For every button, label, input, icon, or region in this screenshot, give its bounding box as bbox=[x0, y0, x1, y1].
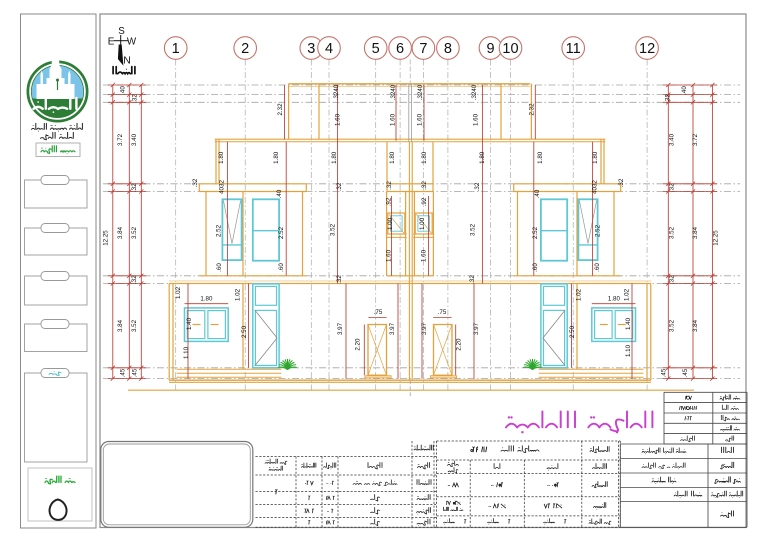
svg-text:10: 10 bbox=[502, 41, 518, 57]
svg-text:3.84: 3.84 bbox=[117, 226, 124, 239]
svg-text:3.52: 3.52 bbox=[330, 223, 337, 236]
svg-text:2.32: 2.32 bbox=[277, 103, 284, 116]
svg-text:1.02: 1.02 bbox=[576, 288, 583, 301]
svg-text:2.20: 2.20 bbox=[455, 338, 462, 351]
svg-text:.32: .32 bbox=[132, 94, 139, 103]
svg-text:1.80: 1.80 bbox=[608, 296, 621, 303]
svg-text:1.60: 1.60 bbox=[416, 113, 423, 126]
svg-text:1.10: 1.10 bbox=[183, 346, 190, 359]
svg-text:1.80: 1.80 bbox=[421, 151, 428, 164]
svg-text:1.60: 1.60 bbox=[334, 113, 341, 126]
svg-text:.40: .40 bbox=[534, 189, 541, 198]
svg-text:6: 6 bbox=[396, 41, 404, 57]
svg-text:1.02: 1.02 bbox=[175, 286, 182, 299]
svg-text:11: 11 bbox=[566, 41, 581, 57]
svg-text:.32: .32 bbox=[131, 275, 138, 284]
svg-text:.40: .40 bbox=[120, 86, 127, 95]
svg-text:W: W bbox=[127, 36, 137, 47]
svg-text:1.02: 1.02 bbox=[624, 288, 631, 301]
svg-text:8: 8 bbox=[444, 41, 452, 57]
svg-text:S: S bbox=[118, 26, 125, 37]
svg-text:1.80: 1.80 bbox=[537, 151, 544, 164]
svg-text:2.52: 2.52 bbox=[278, 226, 285, 239]
svg-text:.32: .32 bbox=[421, 181, 428, 190]
svg-text:1.80: 1.80 bbox=[479, 151, 486, 164]
svg-text:3.97: 3.97 bbox=[389, 322, 396, 335]
svg-text:.75: .75 bbox=[438, 309, 447, 316]
svg-text:1.40: 1.40 bbox=[186, 317, 193, 330]
svg-text:12.25: 12.25 bbox=[713, 230, 720, 246]
svg-text:3.97: 3.97 bbox=[337, 322, 344, 335]
svg-text:3.52: 3.52 bbox=[669, 319, 676, 332]
svg-text:3.84: 3.84 bbox=[692, 226, 699, 239]
svg-text:3.52: 3.52 bbox=[470, 223, 477, 236]
svg-text:1.80: 1.80 bbox=[273, 151, 280, 164]
svg-text:.60: .60 bbox=[594, 263, 601, 272]
svg-text:3.52: 3.52 bbox=[669, 226, 676, 239]
svg-text:.60: .60 bbox=[278, 263, 285, 272]
svg-text:.60: .60 bbox=[216, 263, 223, 272]
svg-text:4032: 4032 bbox=[592, 180, 599, 194]
svg-text:.45: .45 bbox=[661, 368, 668, 377]
svg-text:.32: .32 bbox=[669, 275, 676, 284]
svg-text:3.52: 3.52 bbox=[131, 226, 138, 239]
svg-text:3.72: 3.72 bbox=[117, 133, 124, 146]
svg-text:2.50: 2.50 bbox=[241, 325, 248, 338]
svg-text:.3240: .3240 bbox=[390, 84, 397, 100]
svg-text:2: 2 bbox=[241, 41, 249, 57]
svg-text:2.20: 2.20 bbox=[355, 338, 362, 351]
svg-text:1.02: 1.02 bbox=[234, 288, 241, 301]
svg-text:.32: .32 bbox=[336, 275, 343, 284]
svg-text:1.00: 1.00 bbox=[387, 217, 394, 230]
svg-text:E: E bbox=[108, 36, 115, 47]
svg-text:4032: 4032 bbox=[218, 180, 225, 194]
svg-text:1.80: 1.80 bbox=[218, 151, 225, 164]
svg-text:.32: .32 bbox=[192, 178, 199, 187]
svg-text:.32: .32 bbox=[665, 94, 672, 103]
svg-text:3.97: 3.97 bbox=[473, 322, 480, 335]
svg-text:.3240: .3240 bbox=[471, 84, 478, 100]
svg-text:.92: .92 bbox=[421, 197, 428, 206]
svg-text:3.72: 3.72 bbox=[692, 133, 699, 146]
svg-text:1.60: 1.60 bbox=[390, 113, 397, 126]
svg-text:2.52: 2.52 bbox=[595, 224, 602, 237]
svg-text:2.52: 2.52 bbox=[216, 224, 223, 237]
svg-text:.32: .32 bbox=[618, 178, 625, 187]
svg-text:.45: .45 bbox=[120, 368, 127, 377]
svg-text:9: 9 bbox=[486, 41, 494, 57]
svg-text:.40: .40 bbox=[681, 86, 688, 95]
svg-text:1.80: 1.80 bbox=[200, 296, 213, 303]
svg-text:N: N bbox=[123, 55, 131, 67]
svg-text:.32: .32 bbox=[474, 182, 481, 191]
svg-text:.92: .92 bbox=[386, 197, 393, 206]
svg-text:.32: .32 bbox=[669, 183, 676, 192]
svg-text:.3240: .3240 bbox=[333, 84, 340, 100]
svg-text:1.80: 1.80 bbox=[331, 151, 338, 164]
svg-text:3.97: 3.97 bbox=[421, 322, 428, 335]
svg-text:1.40: 1.40 bbox=[625, 317, 632, 330]
svg-text:12: 12 bbox=[639, 41, 655, 57]
svg-text:.60: .60 bbox=[532, 263, 539, 272]
svg-text:1: 1 bbox=[172, 41, 180, 57]
svg-text:.75: .75 bbox=[374, 309, 383, 316]
svg-text:3.52: 3.52 bbox=[131, 319, 138, 332]
svg-text:3.84: 3.84 bbox=[117, 319, 124, 332]
svg-text:2.32: 2.32 bbox=[529, 103, 536, 116]
svg-text:.40: .40 bbox=[276, 189, 283, 198]
svg-text:.32: .32 bbox=[386, 181, 393, 190]
svg-text:1.60: 1.60 bbox=[421, 249, 428, 262]
svg-text:2.52: 2.52 bbox=[532, 226, 539, 239]
svg-text:2.50: 2.50 bbox=[569, 325, 576, 338]
svg-text:7: 7 bbox=[419, 41, 427, 57]
svg-text:.3240: .3240 bbox=[417, 84, 424, 100]
svg-text:3: 3 bbox=[307, 41, 315, 57]
svg-text:.45: .45 bbox=[682, 368, 689, 377]
svg-text:1.60: 1.60 bbox=[472, 113, 479, 126]
svg-text:4: 4 bbox=[325, 41, 333, 57]
svg-text:.32: .32 bbox=[469, 275, 476, 284]
svg-text:.32: .32 bbox=[131, 183, 138, 192]
svg-text:1.00: 1.00 bbox=[419, 217, 426, 230]
svg-text:1.60: 1.60 bbox=[386, 249, 393, 262]
svg-text:1.80: 1.80 bbox=[389, 151, 396, 164]
svg-text:1.80: 1.80 bbox=[592, 151, 599, 164]
svg-text:3.40: 3.40 bbox=[131, 133, 138, 146]
svg-text:.32: .32 bbox=[336, 182, 343, 191]
svg-text:12.25: 12.25 bbox=[103, 230, 110, 246]
svg-text:3.40: 3.40 bbox=[669, 133, 676, 146]
svg-text:1.10: 1.10 bbox=[625, 344, 632, 357]
svg-text:.45: .45 bbox=[132, 368, 139, 377]
svg-text:3.84: 3.84 bbox=[692, 319, 699, 332]
svg-text:5: 5 bbox=[372, 41, 380, 57]
